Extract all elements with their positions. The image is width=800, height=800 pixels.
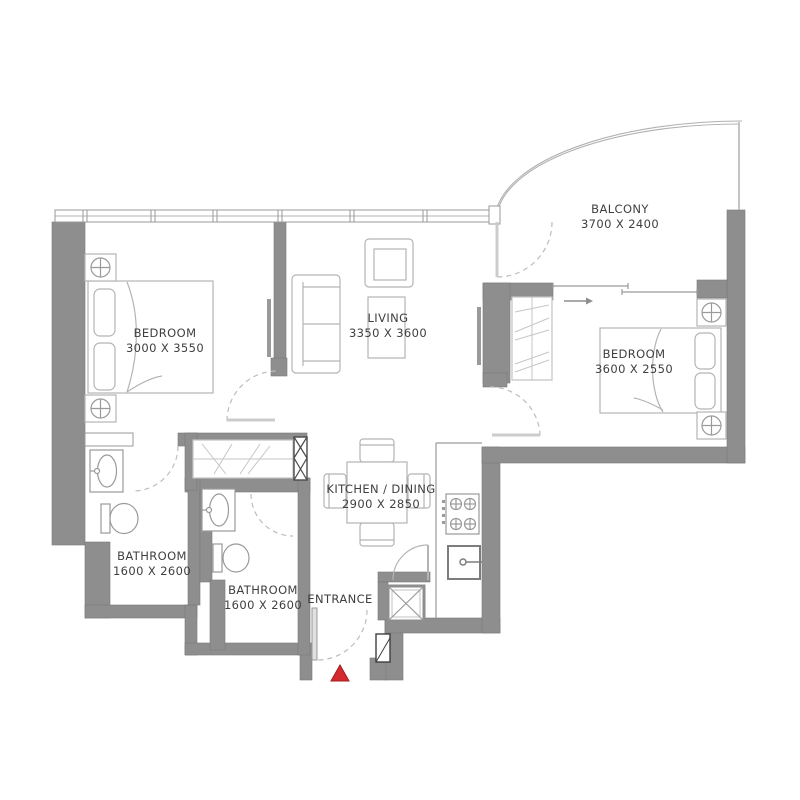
- wall-bedroom2-bottom: [482, 447, 745, 463]
- kitchen-fixtures: [436, 443, 482, 618]
- bed-2-pillow: [695, 333, 715, 369]
- room-dims-living: 3350 X 3600: [349, 326, 427, 340]
- bathroom1-door-swing: [133, 446, 178, 491]
- armchair-seat: [374, 249, 406, 280]
- room-dims-bathroom-2: 1600 X 2600: [224, 598, 302, 612]
- bed-1-pillow: [94, 343, 115, 390]
- wall-wardrobe: [483, 283, 510, 383]
- living-furniture: [292, 239, 481, 373]
- faucet-icon: [207, 508, 212, 513]
- toilet-tank: [213, 544, 222, 572]
- room-label-bedroom-1: BEDROOM: [134, 326, 197, 340]
- floor-plan-drawing: BEDROOM 3000 X 3550 LIVING 3350 X 3600 B…: [0, 0, 800, 800]
- tv-icon: [477, 307, 481, 365]
- washer-box: [388, 586, 424, 621]
- hall-closet: [193, 440, 293, 478]
- room-dims-bathroom-1: 1600 X 2600: [113, 564, 191, 578]
- wall-partition-cap: [271, 358, 287, 376]
- wall-balcony-bottom-right: [697, 280, 727, 298]
- bedroom2-door-swing: [490, 387, 540, 437]
- entrance-cabinet: [376, 634, 390, 662]
- wall-partition-bedroom1: [274, 222, 286, 372]
- room-dims-bedroom-1: 3000 X 3550: [126, 341, 204, 355]
- sliding-door: [553, 283, 697, 295]
- room-dims-kitchen-dining: 2900 X 2850: [342, 497, 420, 511]
- chair: [360, 523, 394, 546]
- room-label-kitchen-dining: KITCHEN / DINING: [326, 482, 435, 496]
- wall-bathroom2-left-lower: [210, 580, 225, 650]
- balcony-door-post: [489, 206, 500, 224]
- toilet-bowl: [110, 504, 138, 534]
- sink-basin: [210, 494, 229, 526]
- bed-1-pillow: [94, 289, 115, 336]
- floor-plan-canvas: BEDROOM 3000 X 3550 LIVING 3350 X 3600 B…: [0, 0, 800, 800]
- wall-kitchen-right: [482, 447, 500, 633]
- wardrobe-bedroom2: [512, 297, 552, 380]
- window-band: [55, 210, 497, 222]
- wall-right: [727, 210, 745, 463]
- sink-basin: [98, 455, 117, 487]
- room-label-bathroom-1: BATHROOM: [117, 549, 187, 563]
- toilet-bowl: [223, 544, 249, 572]
- wall-left: [52, 222, 85, 545]
- wall-wardrobe-foot: [483, 373, 507, 387]
- room-label-entrance: ENTRANCE: [307, 592, 372, 606]
- bedroom1-door-swing: [227, 371, 277, 421]
- entrance-door-swing: [317, 610, 367, 660]
- bed-2-pillow: [695, 373, 715, 409]
- wall-bathroom1-bottom: [85, 605, 197, 618]
- bathroom1-fixtures: [90, 450, 138, 534]
- shaft-column: [294, 437, 307, 480]
- room-label-bedroom-2: BEDROOM: [603, 347, 666, 361]
- room-label-living: LIVING: [368, 311, 409, 325]
- wall-washer-top: [378, 572, 430, 582]
- room-dims-bedroom-2: 3600 X 2550: [595, 362, 673, 376]
- bathroom2-door-swing: [251, 494, 293, 536]
- wall-bathroom2-bottom: [185, 643, 300, 655]
- faucet-icon: [95, 469, 100, 474]
- toilet-tank: [101, 504, 110, 533]
- chair: [360, 439, 394, 462]
- tv-icon: [267, 299, 271, 357]
- room-label-balcony: BALCONY: [591, 202, 649, 216]
- entrance-marker-triangle: [331, 665, 349, 681]
- wall-hall-left: [298, 478, 310, 655]
- entrance-door-leaf: [312, 608, 317, 660]
- wall-light-bathroom1-top: [85, 433, 133, 446]
- balcony-door-swing: [497, 222, 552, 277]
- sliding-door-arrow: [564, 298, 593, 305]
- stove-knobs: [442, 500, 445, 524]
- room-dims-balcony: 3700 X 2400: [581, 217, 659, 231]
- room-label-bathroom-2: BATHROOM: [228, 583, 298, 597]
- faucet-icon: [460, 559, 466, 565]
